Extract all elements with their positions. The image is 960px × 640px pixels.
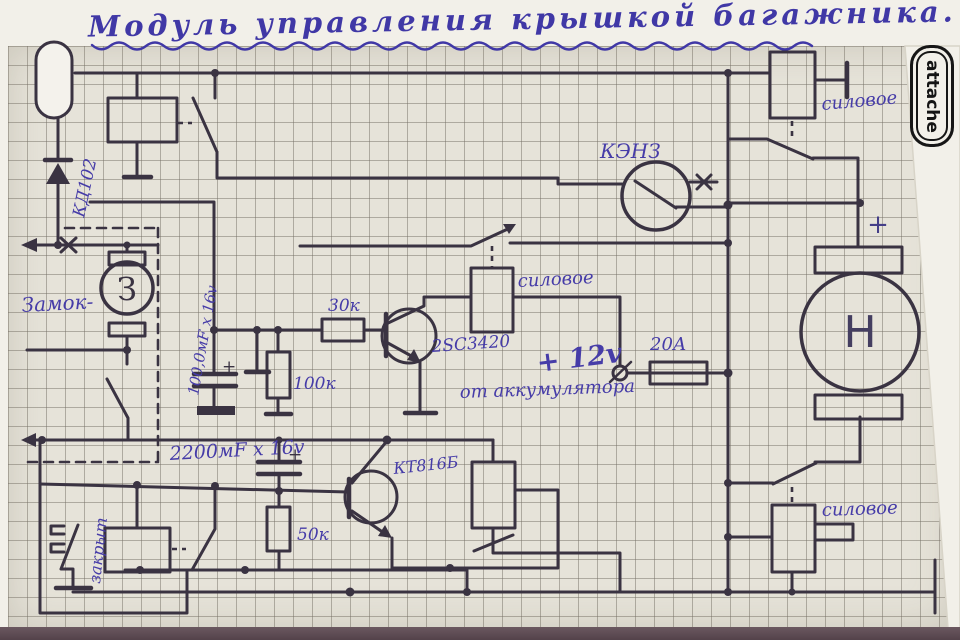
diode-label: КД102 [69, 157, 101, 220]
relay-contact-blade [728, 463, 816, 484]
relay-power-bottom [728, 463, 853, 592]
pump-motor-letter: Н [843, 307, 876, 358]
power-top-label: силовое [821, 87, 898, 115]
lock-feed-wire [21, 238, 158, 252]
kenz-label: КЭНЗ [599, 139, 661, 163]
cap-100uf-label: 100,0мF х 16v [184, 283, 221, 396]
transistor-kt816 [345, 441, 397, 568]
cap-2200uf-plus: + [288, 445, 302, 465]
resistor-50k [267, 507, 290, 551]
resistor-50k-label: 50к [297, 525, 330, 545]
arrow-left-icon [21, 433, 36, 447]
attache-logo-text: attache [922, 60, 942, 133]
relay-coil [772, 505, 815, 572]
supply-voltage-label: + 12v [535, 338, 624, 379]
photo-of-schematic: КД102 Замок- З КЭНЗ силовое силовое сило… [0, 0, 960, 640]
limit-switch-label: закрыт [85, 517, 111, 585]
relay-contact-blade [192, 486, 215, 570]
transistor-2sc3420-label: 2SC3420 [430, 332, 511, 358]
lock-label: Замок- [21, 289, 94, 317]
relay-coil [105, 528, 170, 572]
table-edge [0, 627, 960, 640]
title-underline [92, 43, 812, 50]
resistor-30k-label: 30к [328, 296, 361, 316]
pump-motor-plus: + [867, 210, 889, 240]
junction-dots [38, 69, 864, 597]
attache-logo: attache [910, 45, 954, 147]
relay-top-left [108, 73, 217, 177]
relay-coil [108, 98, 177, 142]
relay-coil [472, 462, 515, 528]
switch-kenz [217, 152, 728, 230]
fuse-20a-label: 20А [649, 334, 687, 355]
base-network [214, 319, 386, 414]
relay-contact-blade [728, 139, 858, 247]
relay-power-mid [300, 224, 728, 332]
supply-source-label: от аккумулятора [459, 376, 635, 403]
relay-coil [770, 52, 815, 118]
relay-bottom-left [105, 485, 215, 572]
circuit-drawing: КД102 Замок- З КЭНЗ силовое силовое сило… [0, 0, 960, 640]
resistor-100k-label: 100к [293, 374, 336, 394]
resistor-30k [322, 319, 364, 341]
arrow-left-icon [21, 238, 37, 252]
power-mid-label: силовое [517, 267, 594, 292]
punch-hole [36, 42, 72, 118]
relay-coil [471, 268, 513, 332]
power-bottom-label: силовое [821, 497, 898, 521]
relay-contact-blade [300, 228, 510, 246]
relay-power-top [728, 52, 858, 247]
cap-100uf-plus: + [222, 357, 236, 377]
lock-motor-letter: З [117, 270, 137, 308]
transistor-kt816-label: КТ816Б [391, 452, 459, 478]
lock-switch-blade [107, 379, 128, 440]
diode-kd102 [45, 118, 71, 245]
